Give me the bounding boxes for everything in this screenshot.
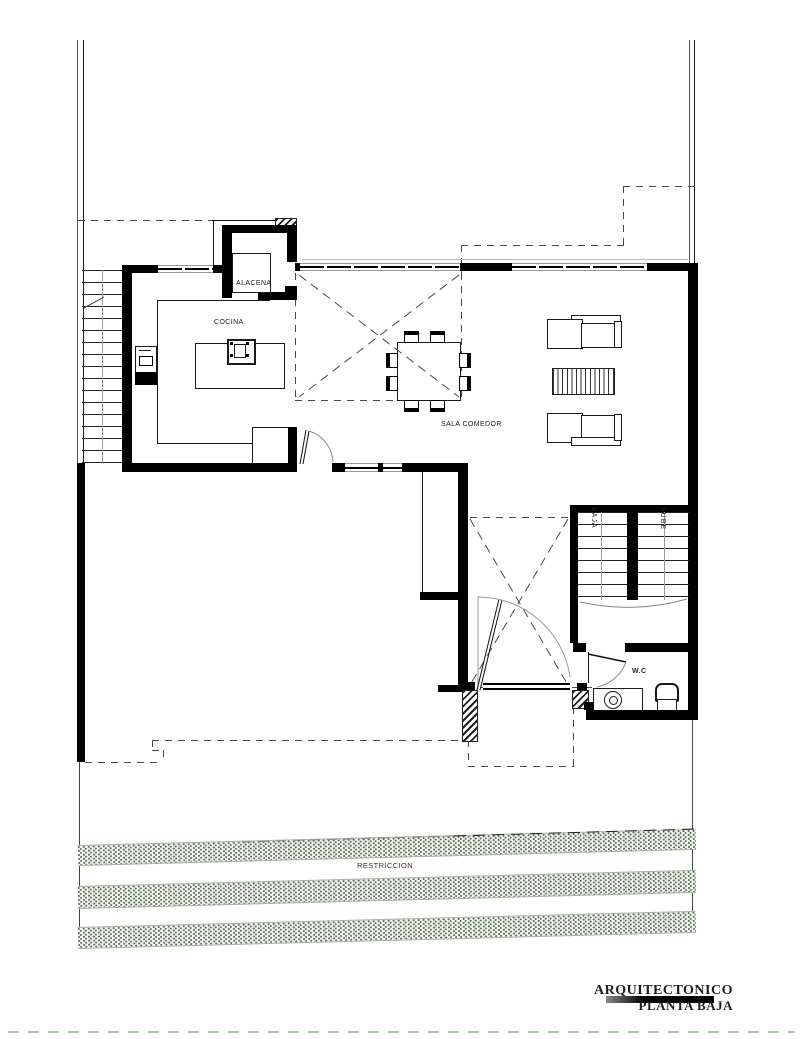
counter-edge <box>157 443 252 444</box>
burner-dot <box>230 342 233 345</box>
counter-edge <box>157 300 158 443</box>
lounge-chair <box>614 414 622 441</box>
drawing-title: ARQUITECTONICO <box>560 983 733 999</box>
drawing-subtitle: PLANTA BAJA <box>560 998 733 1014</box>
restriction-band <box>78 870 696 909</box>
stair-rail-line <box>601 512 602 600</box>
stair-flight-down <box>578 512 627 601</box>
projection-dashed-bottom <box>152 740 153 750</box>
patio-dashed-outline <box>573 707 574 767</box>
window <box>512 263 647 271</box>
property-line-right-outer <box>689 40 690 263</box>
window <box>345 463 378 472</box>
wall <box>586 710 697 720</box>
wc-partition-line <box>588 652 589 683</box>
property-line-left-outer <box>77 40 78 463</box>
stair-label-baja: BAJA <box>590 507 597 529</box>
wc-door-swing-arc <box>597 662 626 687</box>
room-label-alacena: ALACENA <box>236 280 271 287</box>
property-line-right-lower <box>692 720 693 932</box>
roof-projection-dashed <box>623 186 624 246</box>
window <box>158 265 213 273</box>
dining-chair <box>459 353 471 368</box>
threshold <box>483 683 570 690</box>
burner-dot <box>246 354 249 357</box>
wall <box>122 463 297 472</box>
projection-dashed-bottom <box>163 750 164 762</box>
dining-chair <box>386 353 398 368</box>
wall <box>420 592 468 600</box>
door-frame <box>577 683 587 690</box>
wall <box>625 643 692 652</box>
dining-table <box>397 342 461 401</box>
sink-drain <box>609 696 618 705</box>
boundary-wall-left <box>77 463 85 762</box>
thin-line-top <box>212 220 276 221</box>
dining-chair <box>386 376 398 391</box>
dining-chair <box>404 331 419 343</box>
double-height-outline-2 <box>470 517 570 518</box>
wall <box>222 233 232 298</box>
room-label-cocina: COCINA <box>214 319 244 326</box>
wall <box>222 225 297 233</box>
wall <box>258 292 297 300</box>
wall <box>122 273 132 472</box>
window <box>383 463 402 472</box>
thin-line-top-vertical <box>213 220 214 267</box>
projection-dashed-bottom <box>152 750 163 751</box>
roof-projection-dashed <box>623 186 697 187</box>
door-leaf <box>300 430 309 464</box>
pantry-shelf <box>232 253 271 293</box>
floor-plan-canvas: ARQUITECTONICO PLANTA BAJA ALACENA COCIN… <box>0 0 800 1039</box>
kitchen-cabinet <box>252 427 293 466</box>
dining-chair <box>459 376 471 391</box>
door-swing-arc <box>309 431 333 462</box>
stair-mid-wall <box>627 513 638 600</box>
wall <box>460 263 512 271</box>
burner-dot <box>246 342 249 345</box>
burner-dot <box>230 354 233 357</box>
room-label-sala-comedor: SALA COMEDOR <box>441 421 502 428</box>
wall <box>122 265 158 273</box>
range-detail <box>139 356 153 366</box>
wall <box>288 427 297 465</box>
restriction-band <box>78 911 696 949</box>
counter-edge <box>157 300 270 301</box>
lounge-chair <box>614 321 622 348</box>
projection-dashed-bottom <box>85 762 163 763</box>
site-boundary-dashed-green <box>8 1031 795 1033</box>
wall <box>402 463 468 472</box>
pivot-door-leaf <box>477 599 502 690</box>
stair-label-sube: SUBE <box>659 507 666 530</box>
cooktop-center <box>234 344 246 358</box>
property-line-right-inner <box>694 40 695 263</box>
room-label-wc: W.C <box>632 668 646 675</box>
wall <box>570 513 578 643</box>
patio-dashed-outline <box>468 766 574 767</box>
lounge-chair <box>581 323 617 348</box>
exterior-steps-rail <box>102 270 103 463</box>
wall <box>438 685 458 692</box>
wc-door-leaf <box>588 654 626 662</box>
dining-chair <box>404 400 419 412</box>
pivot-door-swing-arc <box>478 597 570 677</box>
rug <box>552 368 615 395</box>
hatched-wall-block <box>462 690 478 742</box>
wall <box>573 643 586 652</box>
projection-dashed-top-left <box>78 220 212 221</box>
restriction-label: RESTRICCION <box>357 861 413 870</box>
wall <box>213 265 222 273</box>
closet-line <box>422 472 423 592</box>
kitchen-cabinet-block <box>135 372 157 385</box>
double-height-cross-2 <box>470 519 568 685</box>
lounge-chair <box>547 319 583 349</box>
door-frame <box>462 682 475 690</box>
range-detail <box>139 350 151 351</box>
wall <box>287 233 297 262</box>
projection-dashed-bottom <box>152 740 462 741</box>
window-sill-line <box>302 259 688 260</box>
wall <box>332 463 345 472</box>
roof-projection-dashed <box>461 245 624 246</box>
wall <box>458 472 468 692</box>
door-frame <box>584 702 594 710</box>
window <box>300 263 460 271</box>
dining-chair <box>430 400 445 412</box>
patio-dashed-outline <box>468 740 469 767</box>
dining-chair <box>430 331 445 343</box>
